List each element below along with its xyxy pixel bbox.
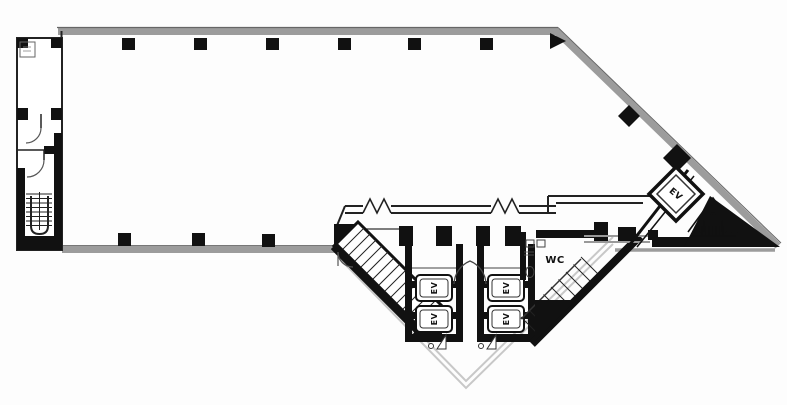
wc-room: WC	[520, 232, 565, 280]
column	[51, 108, 62, 120]
shaft-wall	[477, 334, 535, 342]
door-pivot	[479, 344, 484, 349]
elevator-bank-right: EV EV	[477, 244, 535, 342]
shaft-wall	[528, 244, 535, 341]
column	[480, 38, 493, 50]
floor-plan-page: EV EV EV	[0, 0, 787, 405]
door-jamb	[412, 312, 416, 319]
column	[408, 38, 421, 50]
column	[266, 38, 279, 50]
wc-wall	[520, 232, 526, 280]
bottom-wall	[62, 246, 346, 253]
stair-shaft-wall	[17, 236, 62, 250]
column	[122, 38, 135, 50]
columns-top	[122, 33, 640, 127]
elevator-label: EV	[430, 281, 439, 294]
column	[17, 38, 28, 48]
shutter-zigzag-icon	[363, 199, 391, 213]
elevator-car: EV	[412, 306, 456, 332]
door-jamb	[524, 281, 528, 288]
wall-block	[399, 226, 413, 246]
column	[338, 38, 351, 50]
column	[51, 38, 62, 48]
wc-label: WC	[545, 255, 564, 266]
column	[118, 233, 131, 246]
columns-bottom	[118, 233, 275, 247]
wc-fixture	[537, 240, 545, 247]
elevator-label: EV	[430, 312, 439, 325]
elevator-label: EV	[502, 281, 511, 294]
top-wall	[58, 28, 558, 35]
column	[17, 108, 28, 120]
door-jamb	[412, 281, 416, 288]
wall-block	[476, 226, 490, 246]
shutter-zigzag-icon	[491, 199, 519, 213]
stair-shaft-wall	[17, 168, 25, 238]
shaft-wall	[405, 334, 463, 342]
column	[192, 233, 205, 246]
shaft-wall	[477, 244, 484, 341]
wall-block	[436, 226, 452, 246]
escalator-treads	[702, 226, 723, 236]
core-stairs-right	[521, 236, 640, 344]
wall-block	[505, 226, 521, 246]
elevator-label: EV	[502, 312, 511, 325]
shaft-wall	[405, 244, 412, 341]
door-pivot	[429, 344, 434, 349]
shaft-wall	[456, 244, 463, 341]
stair-shaft-wall	[54, 133, 62, 238]
elevator-car: EV	[412, 275, 456, 301]
door-jamb	[484, 312, 488, 319]
floor-plan-canvas: EV EV EV	[0, 0, 787, 405]
door-jamb	[452, 312, 456, 319]
corner-elevator: EV	[649, 167, 703, 221]
column	[194, 38, 207, 50]
wall-block	[44, 146, 54, 154]
wall-block	[594, 222, 608, 242]
column	[262, 234, 275, 247]
left-service-strip	[17, 38, 62, 250]
